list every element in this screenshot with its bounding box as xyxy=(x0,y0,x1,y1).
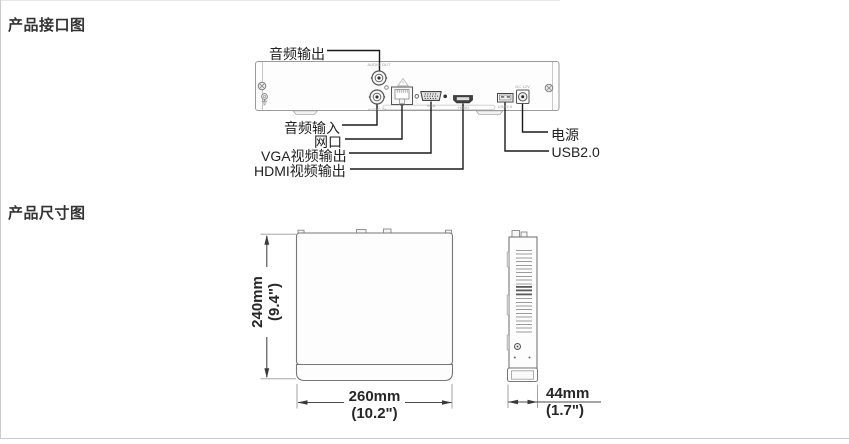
panel-print-dc-power: DC 12V xyxy=(515,84,530,89)
label-power: 电源 xyxy=(551,125,579,145)
side-view-tab-2 xyxy=(507,295,509,315)
arrow-height-bottom xyxy=(264,368,269,378)
panel-print-audio-in: AUDIO IN xyxy=(368,107,387,112)
dimension-depth-mm: 44mm xyxy=(546,385,589,402)
panel-print-hdmi: HDMI xyxy=(458,105,469,110)
label-hdmi: HDMI视频输出 xyxy=(254,161,346,181)
side-view-screw-hole xyxy=(515,344,521,350)
hdmi-port xyxy=(453,96,472,103)
panel-foot-right xyxy=(476,111,503,115)
panel-print-vga: VGA xyxy=(427,103,436,108)
panel-foot-left xyxy=(293,111,318,115)
dimension-width: 260mm (10.2") xyxy=(344,388,405,422)
interface-diagram-title: 产品接口图 xyxy=(8,14,86,35)
arrow-width-left xyxy=(298,400,308,405)
label-audio-out: 音频输出 xyxy=(269,44,325,64)
side-view-tab-3 xyxy=(507,335,509,350)
top-view xyxy=(297,229,453,381)
dimension-width-inch: (10.2") xyxy=(344,405,405,422)
side-view-dot-right xyxy=(529,357,531,359)
arrow-depth-left xyxy=(508,400,518,405)
arrow-depth-right xyxy=(528,400,538,405)
ext-depth xyxy=(508,385,538,409)
lan-port xyxy=(392,87,413,105)
panel-print-usb: USB2.0 xyxy=(498,104,512,109)
line-art xyxy=(0,0,849,444)
dimension-width-mm: 260mm xyxy=(344,388,405,405)
side-view-bump-2 xyxy=(521,232,527,237)
side-view-tab-1 xyxy=(507,252,509,267)
side-view-bump-1 xyxy=(512,231,520,238)
dimension-diagram-title: 产品尺寸图 xyxy=(8,202,86,223)
top-view-front-strip xyxy=(297,365,453,381)
side-view-foot-inner xyxy=(512,371,534,379)
page-bottom-border xyxy=(0,438,849,439)
side-view-dot-left xyxy=(514,357,516,359)
screw-left-icon xyxy=(258,82,266,90)
page-top-border xyxy=(0,0,560,1)
side-view-vent-slots-dark xyxy=(516,286,532,297)
dimension-depth: 44mm (1.7") xyxy=(546,385,589,419)
dimension-height: 240mm (9.4") xyxy=(249,267,283,337)
arrow-height-top xyxy=(264,235,269,245)
arrow-width-right xyxy=(442,400,452,405)
dimension-height-mm: 240mm xyxy=(249,267,266,337)
panel-hole xyxy=(385,86,389,90)
dimension-depth-inch: (1.7") xyxy=(546,402,589,419)
dc-power-jack xyxy=(517,90,530,104)
dimension-height-inch: (9.4") xyxy=(266,267,283,337)
product-spec-page: 产品接口图 音频输出 音频输入 网口 VGA视频输出 HDMI视频输出 电源 U… xyxy=(0,0,849,444)
leader-hdmi xyxy=(350,104,463,170)
panel-print-audio-out: AUDIO OUT xyxy=(367,62,390,67)
top-view-body xyxy=(297,233,453,365)
usb-port xyxy=(498,94,514,103)
screw-right-icon xyxy=(545,84,553,92)
page-left-border xyxy=(0,0,1,439)
label-usb: USB2.0 xyxy=(552,144,600,160)
